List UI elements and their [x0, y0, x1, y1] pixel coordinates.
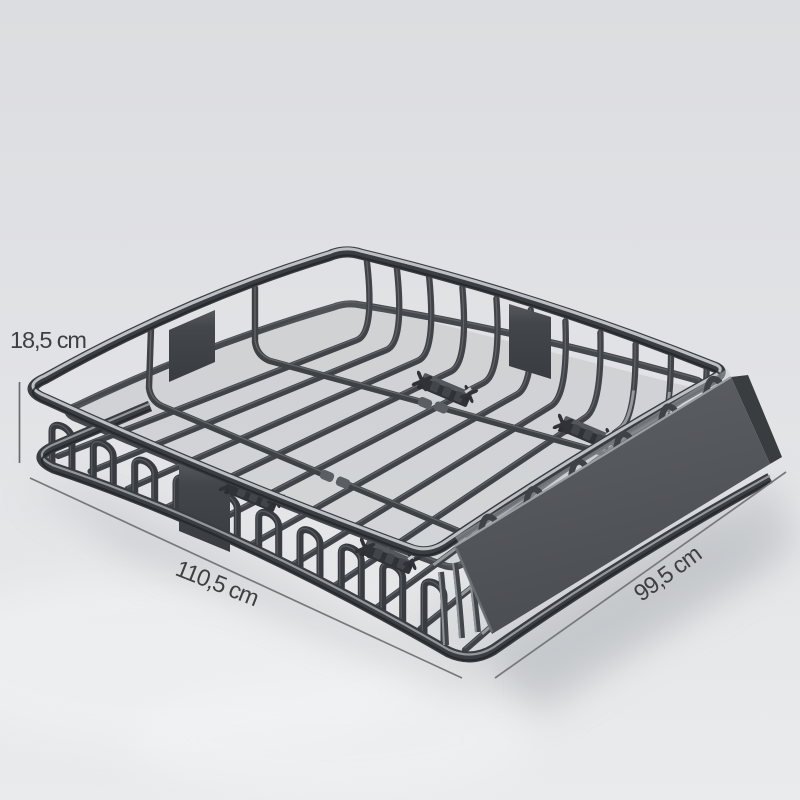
- svg-text:18,5 cm: 18,5 cm: [10, 327, 86, 353]
